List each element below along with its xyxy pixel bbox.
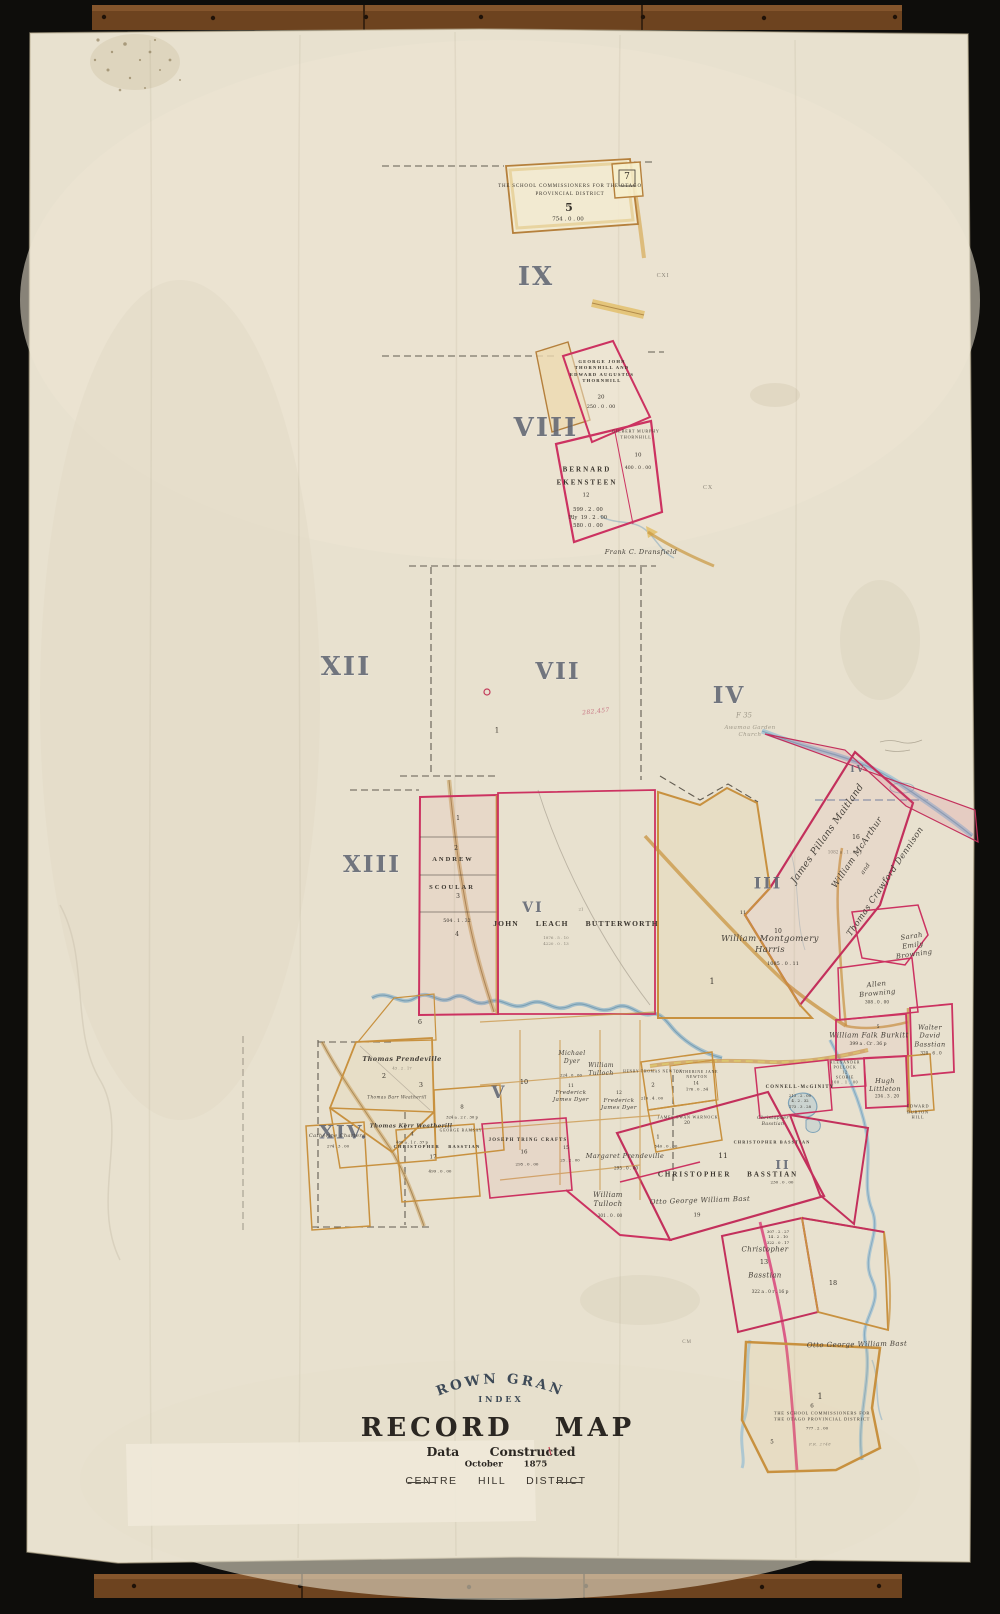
edge-mark-cx: CX [703,485,713,493]
frederick-dyer-2-name: Frederick James Dyer [601,1098,637,1112]
basstian-right-area: 230 . 0 . 00 [771,1179,794,1184]
parcel-thornhill-area: 250 . 0 . 00 [587,404,616,411]
scoular-n3: 3 [456,893,460,901]
harris-south-number: 1 [709,977,714,987]
butterworth-areas: 1876 . 5 . 10 4220 . 0 . 13 [543,935,568,947]
tulloch-mid-name: William Tulloch [588,1062,614,1078]
pencil-church-note: Awamoa Garden Church [724,725,775,739]
vii-parcel-1: 1 [495,726,499,735]
ramsay-number: 8 [460,1104,464,1111]
parcel-school-top-number: 5 [565,201,573,215]
school-bottom-note: P.R. 2748 [809,1441,831,1446]
butterworth-name: JOHN LEACH BUTTERWORTH [493,919,659,929]
scoular-n2: 2 [454,845,458,853]
parcel-18-number: 18 [829,1279,837,1287]
basstian-13-number: 13 [760,1258,768,1266]
parcel-7-number: 7 [624,172,630,184]
sarah-browning-name: Sarah Emily Browning [893,930,933,962]
parcel-scoular [419,795,498,1015]
prendeville-n6: 6 [418,1018,422,1026]
ramsay-area: 324 a . 2 r . 30 p [446,1116,478,1121]
region-vii: VII [535,657,580,687]
region-iv: IV [713,681,746,711]
warnock-number: 20 [684,1121,690,1127]
district-rule-left [408,1482,436,1483]
parcel-ekensteen-name: BERNARD EKENSTEEN [557,464,618,491]
prendeville-n3: 3 [419,1081,423,1089]
parcel-ekensteen-number: 12 [583,492,590,499]
region-iv-small: IV [850,765,865,777]
tulloch-south-name: William Tulloch [593,1191,623,1209]
scoular-n4: 4 [455,931,459,939]
connell-areas: 213 . 2 . 00 4 . 2 . 32 173 . 3 . 28 [789,1093,811,1109]
scoular-last-name: SCOULAR [429,884,475,892]
thomas-prendeville-area: 43 . 2 . 17 [392,1067,411,1072]
region-iii: III [754,874,782,895]
thomas-prendeville-name: Thomas Prendeville [362,1055,441,1063]
basstian-right-name: CHRISTOPHER BASSTIAN [734,1139,811,1144]
weatherill-barr-name: Thomas Barr Weatherill [367,1094,426,1099]
catherine-newton-number: 14 [693,1080,698,1085]
basstian-13-calc: 307 . 2 . 27 14 . 2 . 10 322 . 0 . 17 [767,1229,789,1245]
walter-bastian-area: 320 . 6 . 0 [920,1050,941,1055]
parcel-crafts [482,1118,572,1198]
margaret-prendeville-area: 295 . 0 . 00 [614,1165,638,1170]
crafts-number: 16 [521,1149,528,1156]
basstian-main-name: CHRISTOPHER BASSTIAN [658,1170,798,1179]
scanned-map-page: IX VIII XII VII IV XIII VI III XIV. V II… [0,0,1000,1614]
otto-bast-mid-number: 19 [694,1212,701,1219]
basstian-17-number: 17 [430,1154,437,1161]
michael-dyer-name: Michael Dyer [558,1050,585,1066]
littleton-area: 234 . 3 . 20 [875,1093,899,1098]
edge-mark-cm: CM [682,1340,691,1347]
littleton-name: Hugh Littleton [869,1077,901,1093]
frederick-dyer-2-number: 12 [616,1091,622,1097]
parcel-school-top-area: 754 . 0 . 00 [552,216,584,223]
main-title: RECORD MAP [361,1412,635,1446]
charters-area: 274 . 3 . 00 [327,1143,349,1148]
weatherill-kerr-number: 4 [410,1131,414,1138]
charters-name: Catherine Charters [309,1133,365,1140]
weatherill-kerr-name: Thomas Kerr Weatherill [370,1123,453,1130]
henry-newton-name: HENRY THOMAS NEWTON [623,1070,683,1075]
catherine-newton-name: CATHERINE JANE NEWTON [676,1070,719,1080]
scoular-first-name: ANDREW [432,856,474,864]
henry-newton-area: 210 . 4 . 00 [641,1095,663,1100]
burkitt-number: 5 [877,1025,880,1031]
date-line: October 1875 [465,1459,548,1470]
school-bottom-5: 5 [770,1439,774,1446]
henry-newton-number: 2 [651,1082,655,1089]
basstian-17-area: 499 . 0 . 00 [429,1168,452,1173]
harris-sub: 11 [740,910,746,917]
dransfield-name: Frank C. Dransfield [605,548,677,556]
harris-area: 1085 . 0 . 11 [767,961,799,968]
school-bottom-sub: 6 [810,1403,814,1410]
weatherill-kerr-area: 400 a . 1 r . 37 p [396,1141,428,1146]
crafts-name: JOSEPH TRING CRAFTS [489,1138,568,1144]
basstian-13-first: Christopher [742,1245,789,1254]
basstian-main-number: 11 [718,1151,728,1161]
basstian-small-name: Christopher Basstian [757,1116,789,1128]
parcel-gilbert-area: 400 . 0 . 00 [625,466,651,472]
warnock-name: JAMES SWAN WARNOCK [658,1114,719,1119]
crafts-area15: 25 . 2 . 00 [560,1159,579,1164]
frederick-dyer-1-name: Frederick James Dyer [553,1090,589,1104]
region-ix: IX [518,261,554,295]
catherine-newton-area: 176 . 0 . 34 [686,1086,708,1091]
basstian-13-area: 322 a . 0 r . 16 p [752,1290,789,1296]
otto-bast-se-name: Otto George William Bast [807,1340,907,1351]
v-block-number: 10 [520,1078,528,1086]
parcel-ekensteen-areas: 599 . 2 . 00 Rly 19 . 2 . 00 580 . 0 . 0… [569,506,607,530]
region-vi: VI [522,899,543,917]
edward-hill-name: EDWARD BURTON HILL [907,1103,930,1120]
parcel-gilbert-name: GILBERT MURPHY THORNHILL [612,428,660,439]
burkitt-area: 399 a . Cr . 36 p [850,1042,887,1048]
butterworth-sub: 21 [578,906,583,911]
edge-mark-cxi: CXI [657,273,670,281]
parcel-thornhill-name: GEORGE JOHN THORNHILL AND EDWARD AUGUSTU… [570,359,634,385]
index-label: INDEX [478,1394,523,1404]
allen-browning-area: 308 . 0 . 00 [865,999,889,1004]
scoular-area: 504 . 1 . 32 [443,919,470,925]
walter-bastian-name: Walter David Basstian [914,1023,945,1048]
crafts-n15: 15 [563,1146,569,1152]
region-v: V [491,1082,506,1104]
school-bottom-number: 1 [817,1392,822,1402]
tulloch-south-area: 301 . 0 . 00 [598,1214,623,1220]
prendeville-n2: 2 [382,1072,386,1080]
basstian-13-last: Basstian [748,1271,781,1280]
region-xiii: XIII [343,850,401,880]
parcel-gilbert-number: 10 [635,452,642,459]
crafts-area: 295 . 0 . 00 [516,1161,539,1166]
district-rule-right [556,1482,582,1483]
region-xii: XII [321,651,372,685]
school-bottom-area: 777 . 2 . 00 [806,1425,828,1430]
region-viii: VIII [514,412,579,446]
data-constructed-line: Data Constructed [426,1444,575,1460]
pollock-name: ALEXANDER POLLOCK 12 SCOBIE 100 . 1 . 00 [830,1061,860,1086]
parcel-school-top-name: THE SCHOOL COMMISSIONERS FOR THE OTAGO P… [498,183,642,199]
harris-name: William Montgomery Harris [721,934,819,956]
michael-dyer-area: 224 . 0 . 00 [560,1074,582,1079]
warnock-area: 540 . 0 . 00 [655,1143,678,1148]
pencil-ref-note: F 35 [736,711,752,720]
connell-name: CONNELL-McGINITY [766,1085,835,1091]
parcel-thornhill-number: 20 [598,394,605,401]
warnock-sub-number: 1 [656,1134,660,1141]
frederick-dyer-1-number: 11 [568,1084,574,1090]
school-bottom-name: THE SCHOOL COMMISSIONERS FOR THE OTAGO P… [774,1411,870,1424]
margaret-prendeville-name: Margaret Prendeville [586,1152,665,1160]
scoular-n1: 1 [456,815,460,823]
burkitt-name: William Falk Burkitt [829,1031,908,1040]
